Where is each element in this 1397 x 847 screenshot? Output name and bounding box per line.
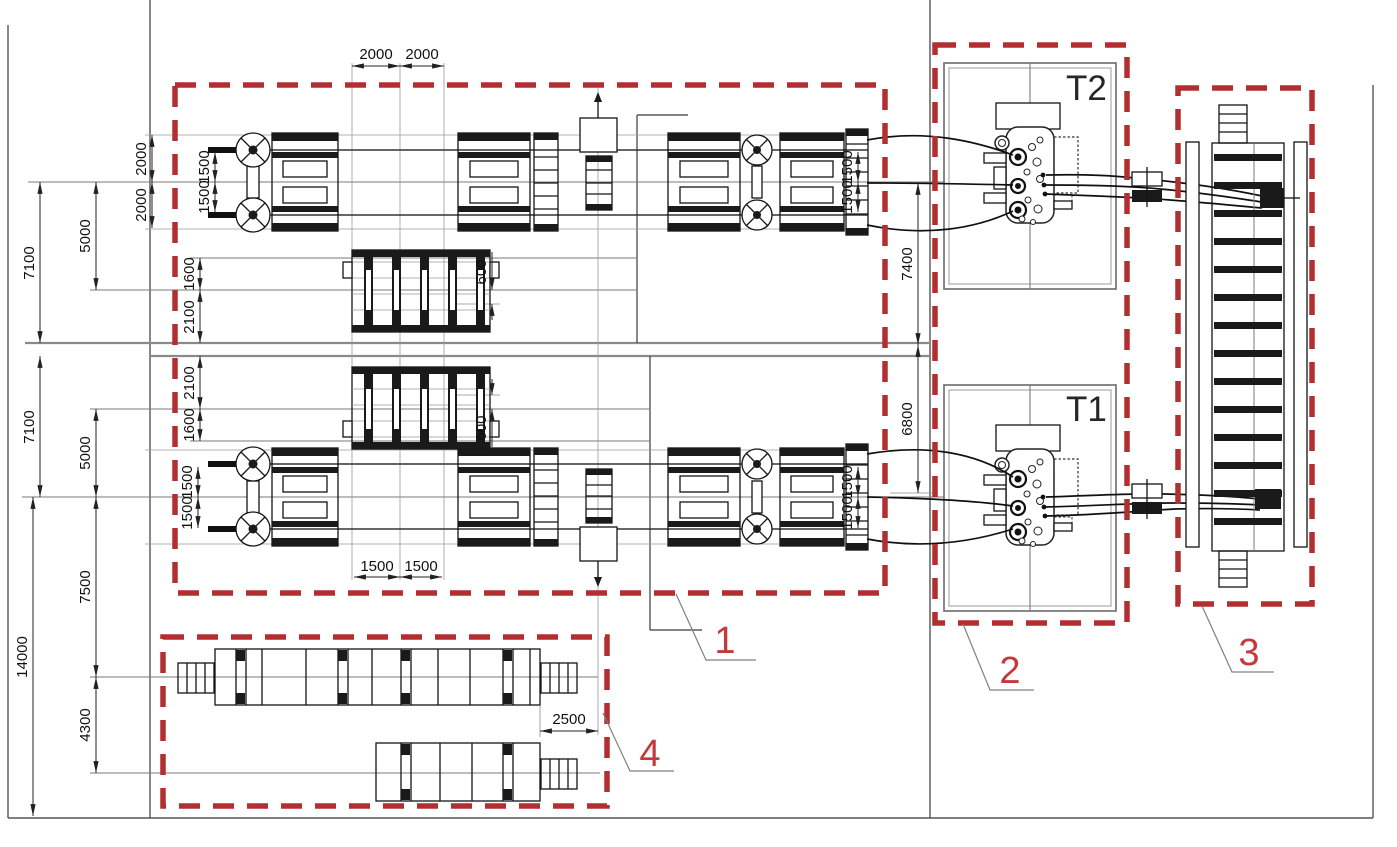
svg-text:1500: 1500 <box>196 150 213 183</box>
svg-text:1600: 1600 <box>181 408 198 441</box>
svg-text:1500: 1500 <box>179 496 196 529</box>
dim-walkway-2500: 2500 <box>540 711 598 731</box>
svg-text:1500: 1500 <box>360 558 393 575</box>
dim-left-7100-lower: 7100 <box>21 356 40 497</box>
svg-text:6800: 6800 <box>899 402 916 435</box>
svg-text:1500: 1500 <box>839 465 856 498</box>
dim-top-2000-a: 2000 <box>352 46 400 66</box>
dim-row-bl-1500-a: 1500 <box>179 465 198 498</box>
svg-text:7100: 7100 <box>21 246 38 279</box>
zone2-label: 2 <box>999 650 1020 692</box>
switchgear-row-bottom <box>145 444 868 587</box>
dim-left-4300: 4300 <box>77 677 96 773</box>
dim-mid-2100-upper: 2100 <box>181 290 200 343</box>
dim-row-br-1500-a: 1500 <box>839 465 858 498</box>
dim-row-br-1500-b: 1500 <box>839 496 858 529</box>
dim-left-7100-upper: 7100 <box>21 182 40 343</box>
svg-text:1500: 1500 <box>839 150 856 183</box>
dim-row-tl-1500-b: 1500 <box>196 180 215 213</box>
walkway-bottom <box>376 743 577 801</box>
switchgear-row-top <box>145 92 868 235</box>
plan-canvas: 1 2 3 4 T2 T1 2000 2000 1500 1500 2500 2… <box>0 0 1397 847</box>
svg-text:600: 600 <box>473 415 490 440</box>
svg-text:2000: 2000 <box>133 188 150 221</box>
svg-text:2000: 2000 <box>405 46 438 63</box>
dim-bottom-1500-b: 1500 <box>400 558 442 577</box>
dim-row-bl-1500-b: 1500 <box>179 496 198 529</box>
dim-row-tl-2000-b: 2000 <box>133 182 152 228</box>
dim-mid-1600-lower: 1600 <box>181 408 200 441</box>
dim-right-6800: 6800 <box>899 345 918 493</box>
zone1-label: 1 <box>714 620 735 662</box>
zone-boxes <box>163 45 1312 806</box>
dim-row-tr-1500-b: 1500 <box>839 180 858 213</box>
dim-left-14000: 14000 <box>14 497 33 816</box>
svg-text:2100: 2100 <box>181 300 198 333</box>
svg-text:1600: 1600 <box>181 257 198 290</box>
dim-left-5000-lower: 5000 <box>77 409 96 497</box>
dim-row-tr-1500-a: 1500 <box>839 150 858 183</box>
svg-text:1500: 1500 <box>839 496 856 529</box>
dim-left-7500: 7500 <box>77 497 96 677</box>
dim-right-7400: 7400 <box>899 183 918 345</box>
svg-text:1500: 1500 <box>404 558 437 575</box>
svg-text:5000: 5000 <box>77 436 94 469</box>
zone4-label: 4 <box>639 733 660 775</box>
svg-text:7100: 7100 <box>21 410 38 443</box>
cable-junction-lower <box>1132 479 1162 519</box>
svg-text:5000: 5000 <box>77 219 94 252</box>
svg-text:7500: 7500 <box>77 570 94 603</box>
zone3-label: 3 <box>1238 632 1259 674</box>
transformer-t2-label: T2 <box>1066 69 1107 108</box>
dim-mid-1600-upper: 1600 <box>181 257 200 290</box>
transformer-t1-label: T1 <box>1066 390 1107 429</box>
dim-mid-2100-lower: 2100 <box>181 356 200 409</box>
dim-row-tl-1500-a: 1500 <box>196 150 215 183</box>
svg-text:600: 600 <box>473 259 490 284</box>
cable-rack-structure <box>1186 105 1307 587</box>
svg-text:4300: 4300 <box>77 708 94 741</box>
dim-left-5000-upper: 5000 <box>77 182 96 290</box>
svg-text:2000: 2000 <box>133 142 150 175</box>
rack-rungs <box>1214 154 1282 525</box>
svg-text:2500: 2500 <box>552 711 585 728</box>
svg-text:1500: 1500 <box>196 180 213 213</box>
svg-text:2100: 2100 <box>181 366 198 399</box>
dim-row-tl-2000-a: 2000 <box>133 135 152 182</box>
svg-text:14000: 14000 <box>14 636 31 678</box>
svg-text:2000: 2000 <box>359 46 392 63</box>
dim-top-2000-b: 2000 <box>400 46 444 66</box>
dim-bottom-1500-a: 1500 <box>354 558 400 577</box>
site-plan-drawing: 1 2 3 4 T2 T1 2000 2000 1500 1500 2500 2… <box>0 0 1397 847</box>
svg-text:1500: 1500 <box>179 465 196 498</box>
svg-text:1500: 1500 <box>839 180 856 213</box>
svg-text:7400: 7400 <box>899 247 916 280</box>
